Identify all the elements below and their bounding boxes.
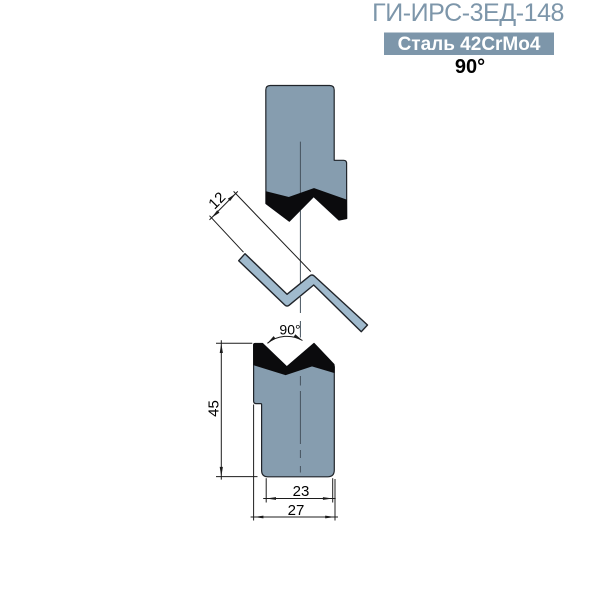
svg-text:27: 27 bbox=[288, 502, 305, 519]
svg-text:Сталь 42CrMo4: Сталь 42CrMo4 bbox=[398, 34, 541, 55]
svg-text:90°: 90° bbox=[279, 321, 300, 337]
svg-text:45: 45 bbox=[205, 400, 222, 417]
svg-text:23: 23 bbox=[293, 483, 310, 500]
svg-text:ГИ-ИРС-3ЕД-148: ГИ-ИРС-3ЕД-148 bbox=[372, 0, 564, 27]
svg-text:12: 12 bbox=[205, 189, 229, 213]
svg-text:90°: 90° bbox=[455, 56, 485, 78]
